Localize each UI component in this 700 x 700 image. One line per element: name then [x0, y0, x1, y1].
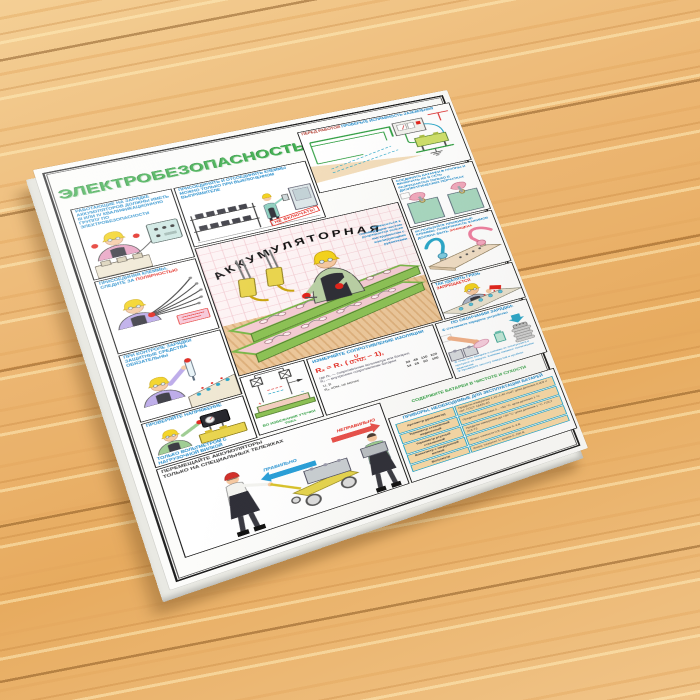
svg-text:+: + — [258, 401, 263, 406]
svg-text:−: − — [301, 389, 305, 394]
